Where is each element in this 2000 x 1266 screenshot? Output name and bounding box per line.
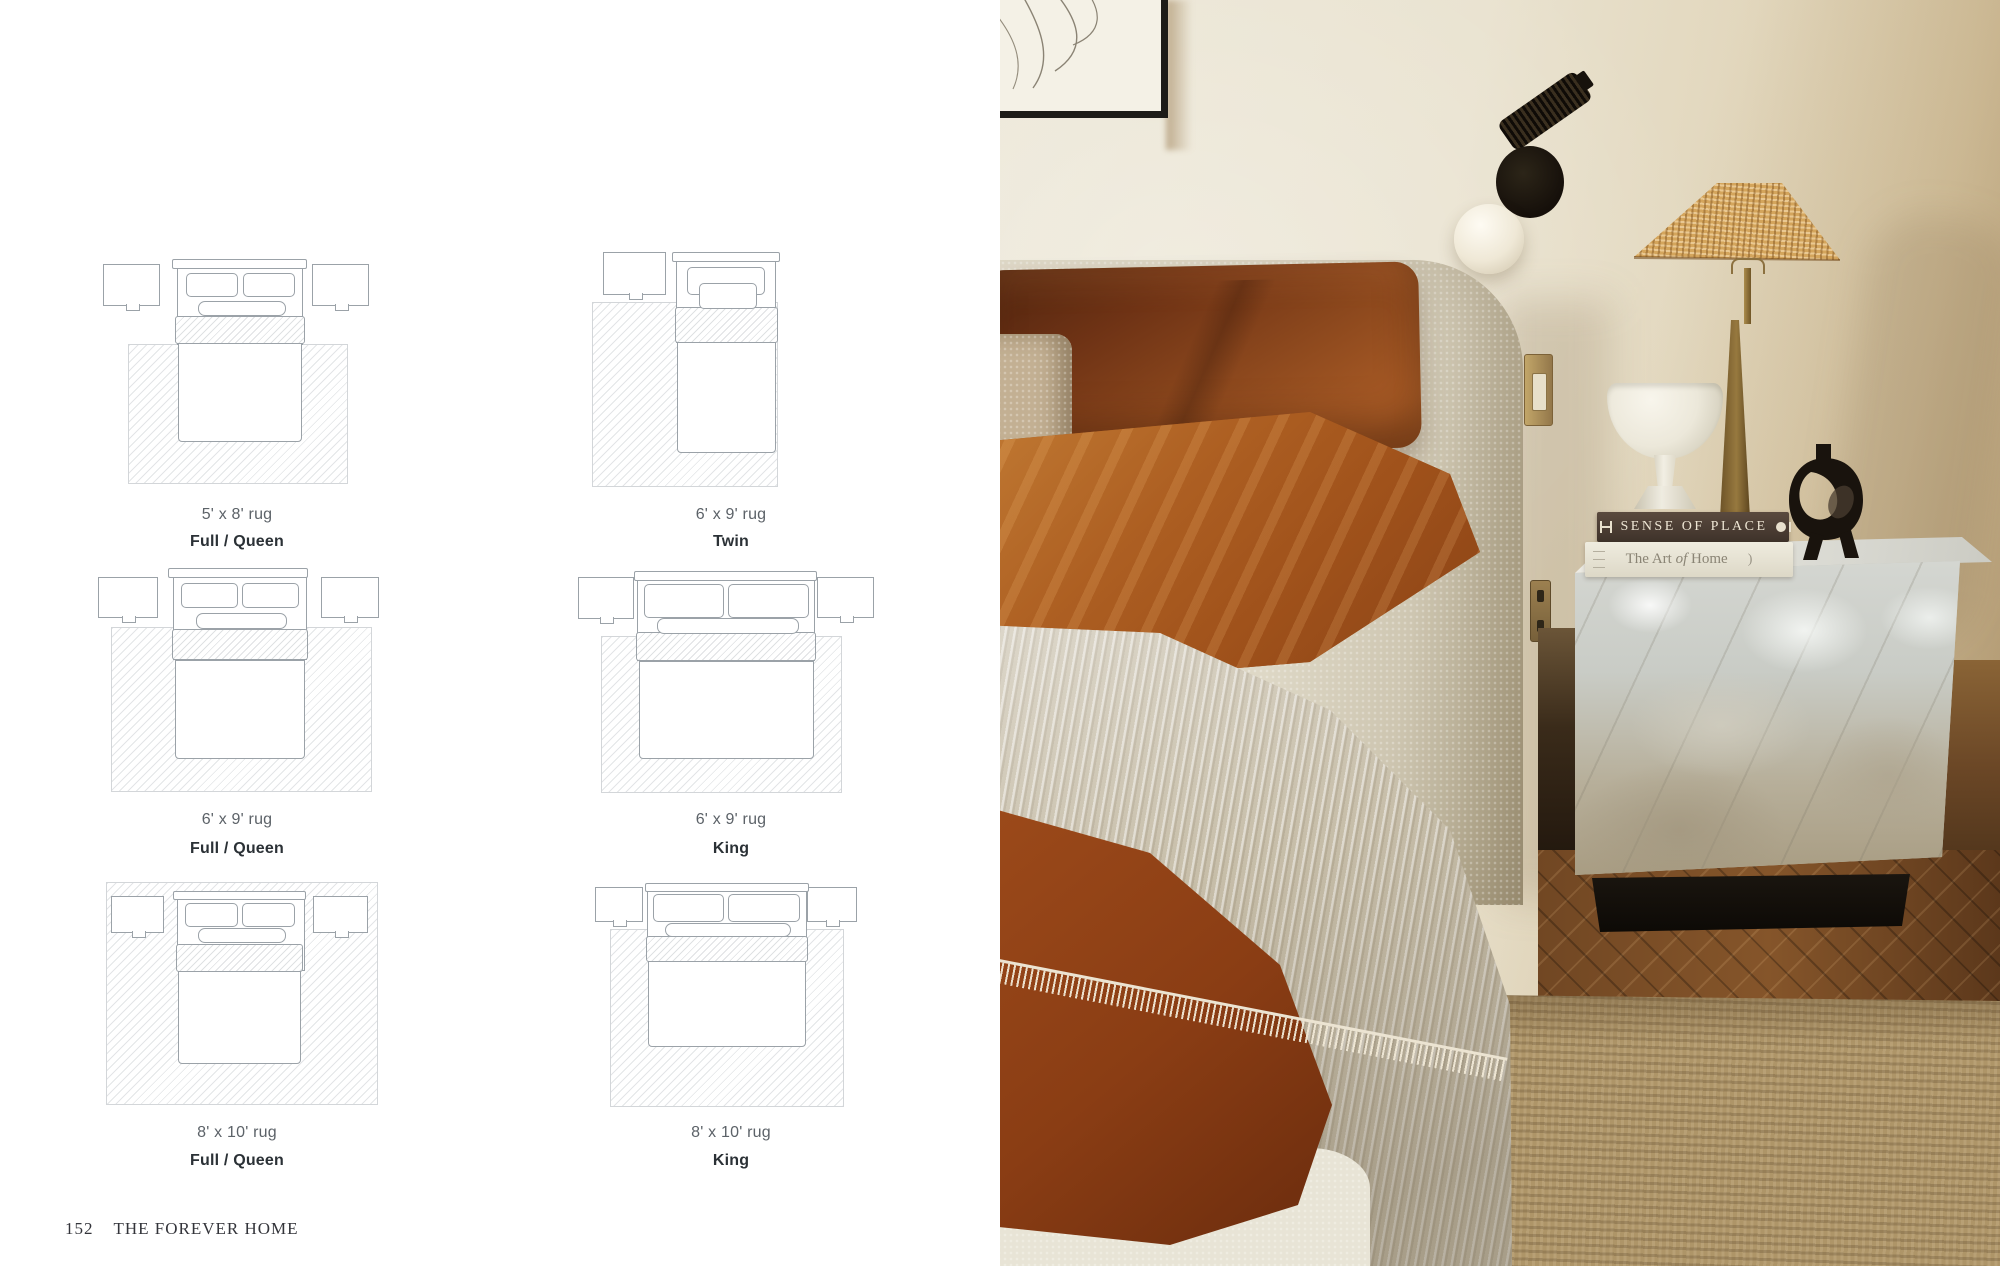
book-spine-title: The Art of Home — [1626, 551, 1728, 568]
nightstand-right — [817, 577, 874, 618]
pillow — [728, 584, 809, 618]
page-number: 152 — [65, 1219, 94, 1239]
nightstand-right — [312, 264, 369, 306]
brass-lamp-stem — [1744, 268, 1751, 324]
bolster-pillow — [657, 618, 799, 634]
nightstand-right — [321, 577, 379, 618]
folded-blanket — [172, 629, 308, 660]
nightstand-right — [313, 896, 368, 933]
bed-body — [178, 343, 302, 442]
bolster-pillow — [665, 923, 791, 937]
bed-type-label: Full / Queen — [190, 533, 284, 551]
book-spread: 5' x 8' rug Full / Queen 6' x 9' rug Twi… — [0, 0, 2000, 1266]
folded-blanket — [675, 307, 778, 343]
rug-size-label: 8' x 10' rug — [691, 1124, 771, 1142]
folded-blanket — [176, 944, 303, 972]
bolster-pillow — [198, 928, 286, 943]
folded-blanket — [636, 632, 816, 661]
page-footer: 152 THE FOREVER HOME — [65, 1219, 299, 1239]
bed-type-label: King — [713, 1152, 749, 1170]
framed-line-art — [1000, 0, 1168, 118]
bed-body — [648, 961, 806, 1047]
pillow-inner — [699, 283, 757, 309]
pillow — [243, 273, 295, 297]
nightstand-left — [111, 896, 164, 933]
nightstand-left — [595, 887, 643, 922]
book-title: THE FOREVER HOME — [114, 1219, 299, 1239]
spine-mark: ) — [1748, 552, 1753, 568]
rug-size-label: 6' x 9' rug — [696, 506, 767, 524]
publisher-mark-icon — [1600, 521, 1612, 533]
pillow — [185, 903, 238, 927]
white-globe-bulb — [1454, 204, 1524, 274]
herringbone-wood-floor — [1538, 850, 2000, 1020]
pillow — [644, 584, 724, 618]
line-drawing — [1000, 0, 1161, 111]
folded-blanket — [175, 316, 305, 344]
bed-body — [677, 342, 776, 453]
left-page-rug-guide: 5' x 8' rug Full / Queen 6' x 9' rug Twi… — [0, 0, 1000, 1266]
book-spine-title: SENSE OF PLACE — [1620, 519, 1767, 535]
bolster-pillow — [196, 613, 287, 629]
nightstand-left — [603, 252, 666, 295]
nightstand-right — [807, 887, 857, 922]
nightstand-left — [103, 264, 160, 306]
black-wall-sconce — [1496, 146, 1564, 218]
spine-text-block — [1593, 551, 1605, 568]
bed-type-label: Twin — [713, 533, 749, 551]
book-the-art-of-home: The Art of Home ) — [1585, 542, 1793, 577]
black-abstract-sculpture — [1783, 444, 1865, 562]
pillow — [653, 894, 724, 922]
rug-size-label: 8' x 10' rug — [197, 1124, 277, 1142]
pillow — [728, 894, 800, 922]
pillow — [186, 273, 238, 297]
rug-size-label: 6' x 9' rug — [696, 811, 767, 829]
nightstand-left — [578, 577, 634, 619]
pillow — [181, 583, 238, 608]
rug-size-label: 6' x 9' rug — [202, 811, 273, 829]
marble-cube-side-table — [1575, 561, 1992, 877]
pillow — [242, 903, 295, 927]
brass-light-switch — [1524, 354, 1553, 426]
bed-body — [178, 971, 301, 1064]
bolster-pillow — [198, 301, 286, 316]
shadow-gap — [1538, 628, 1578, 878]
book-sense-of-place: SENSE OF PLACE — [1597, 512, 1789, 542]
folded-blanket — [646, 936, 808, 962]
bed-body — [175, 660, 305, 759]
rug-size-label: 5' x 8' rug — [202, 506, 273, 524]
frame-shadow — [1166, 0, 1192, 150]
pillow — [242, 583, 299, 608]
bed-type-label: Full / Queen — [190, 840, 284, 858]
right-page-bedroom-photo: SENSE OF PLACE The Art of Home ) — [1000, 0, 2000, 1266]
nightstand-left — [98, 577, 158, 618]
black-plinth-base — [1592, 874, 1910, 932]
bed-type-label: Full / Queen — [190, 1152, 284, 1170]
bed-body — [639, 661, 814, 759]
art-canvas — [1000, 0, 1161, 111]
bed-type-label: King — [713, 840, 749, 858]
